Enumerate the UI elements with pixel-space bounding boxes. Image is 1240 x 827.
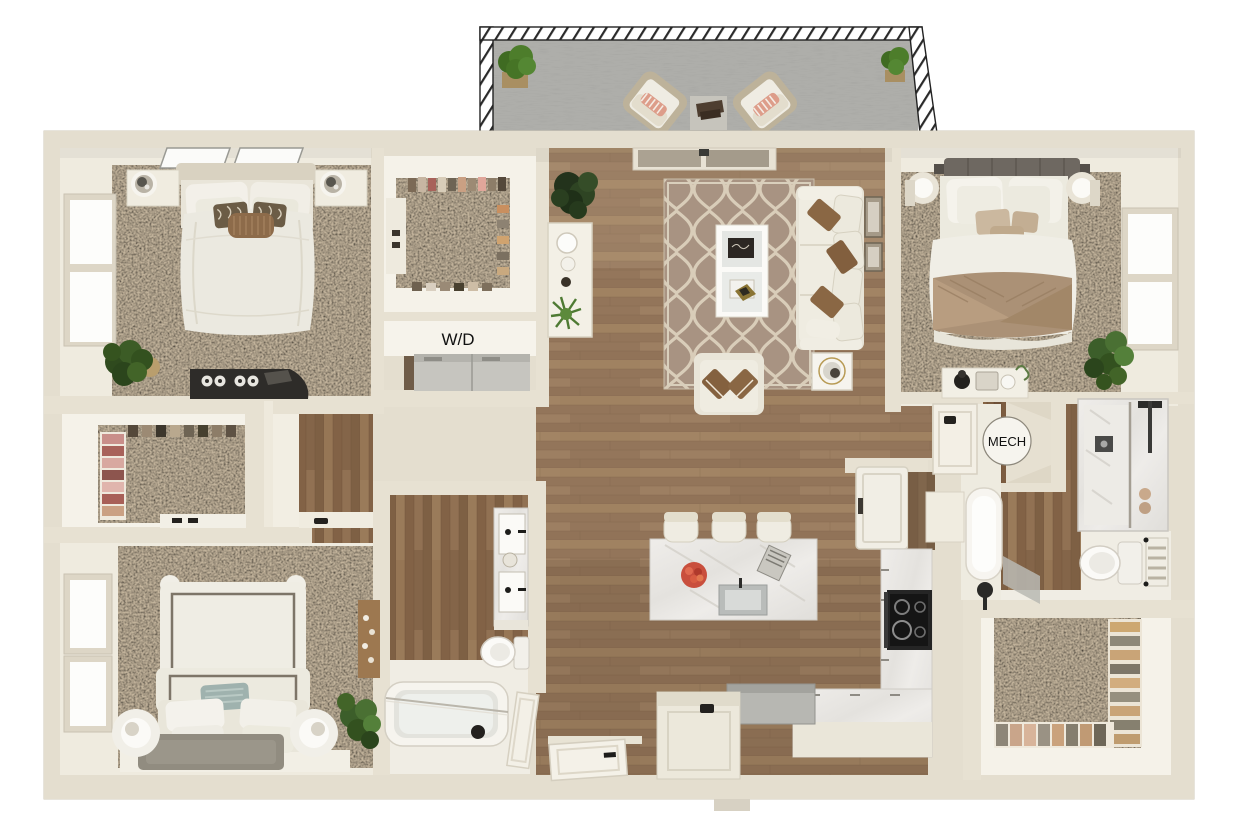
svg-text:W/D: W/D (441, 330, 474, 349)
svg-text:MECH: MECH (988, 434, 1026, 449)
